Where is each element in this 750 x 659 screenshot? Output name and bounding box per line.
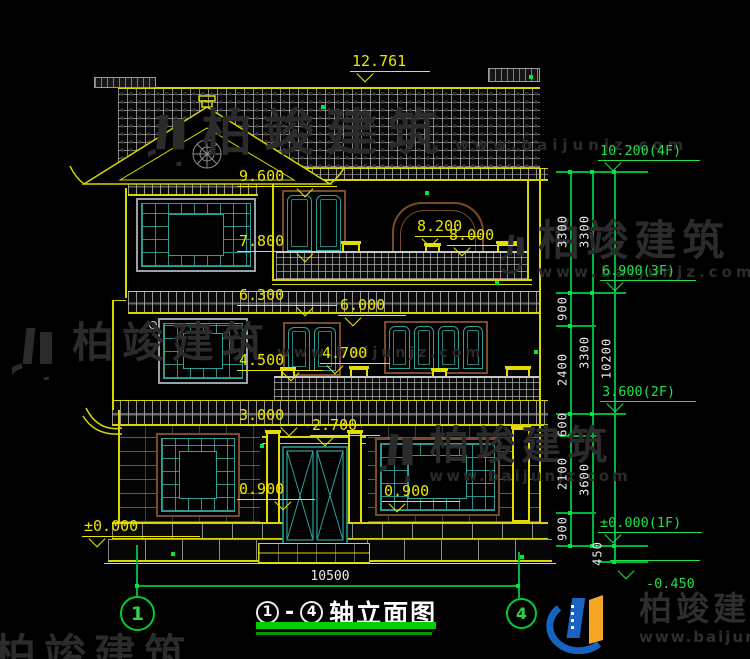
elevation-attic-window: 7.800: [237, 232, 337, 260]
terrace-floor-line: [272, 279, 532, 281]
cad-dot: [425, 191, 429, 195]
axis-line-4: [518, 552, 520, 598]
footer-logo-url: www.baijunjz.com: [639, 628, 750, 646]
cad-elevation-drawing: 柏竣建筑 www.baijunjz.com 柏竣建筑 www.baijunjz.…: [0, 0, 750, 659]
footer-logo: 柏竣建筑 www.baijunjz.com: [543, 592, 750, 654]
axis-line-1: [136, 545, 138, 596]
floor-marker-3f: 6.900(3F): [600, 263, 696, 289]
ridge-ornament-left: [94, 77, 156, 88]
axis-bubble-4: 4: [506, 598, 537, 629]
watermark-logo-icon: [12, 322, 62, 380]
floor-marker-base: -0.450: [610, 560, 700, 592]
elevation-eave2-right: 6.000: [338, 296, 406, 324]
elevation-win2-right: 4.700: [320, 344, 390, 372]
elevation-roof-peak: 12.761: [350, 52, 430, 80]
elevation-terrace-low: 8.000: [447, 226, 517, 254]
dim-col1-600: 600: [557, 401, 570, 449]
elevation-ground-left: ±0.000: [82, 517, 200, 545]
entrance-steps: [258, 543, 370, 563]
first-floor-window-left: [156, 433, 240, 517]
title-axis-start-bubble: 1: [256, 601, 279, 624]
title-axis-end-bubble: 4: [300, 601, 323, 624]
title-underline-thin: [256, 632, 432, 635]
overall-width-dim: 10500: [300, 569, 360, 584]
elevation-eave2-left: 6.300: [237, 286, 337, 314]
cad-dot: [495, 281, 499, 285]
bay-wall-edge-attic: [125, 188, 127, 298]
terrace-wall-edge: [272, 180, 274, 280]
attic-bay-window-lattice: [141, 203, 251, 267]
dim-col1-2400: 2400: [557, 346, 570, 394]
elevation-win2-left: 4.500: [237, 351, 323, 379]
cad-dot: [529, 75, 533, 79]
watermark-brand: 柏竣建筑: [202, 104, 450, 162]
gable-horn-left: [70, 166, 84, 184]
elevation-win1-left: 0.900: [237, 480, 315, 508]
dim-col1-2100: 2100: [557, 450, 570, 498]
dim-col2-3300a: 3300: [579, 208, 592, 256]
dim-col2-3300b: 3300: [579, 329, 592, 377]
dim-col1-3300a: 3300: [557, 208, 570, 256]
floor-marker-1f: ±0.000(1F): [598, 515, 702, 541]
watermark-partial: 柏竣建筑: [0, 634, 194, 659]
footer-logo-icon: [543, 592, 631, 654]
dim-col1-900a: 900: [557, 285, 570, 333]
elevation-attic-canopy: 9.600: [237, 167, 337, 195]
elevation-win1-right: 0.900: [382, 482, 460, 510]
dim-col3-10200: 10200: [601, 335, 614, 383]
cad-dot: [520, 555, 524, 559]
watermark-logo-icon: [148, 108, 192, 166]
ground-line: [104, 563, 556, 564]
dim-col2-3600: 3600: [579, 456, 592, 504]
elevation-door-top: 2.700: [310, 416, 380, 444]
cad-dot: [171, 552, 175, 556]
floor-marker-4f: 10.200(4F): [598, 143, 700, 169]
title-underline-thick: [256, 622, 436, 629]
title-dash: -: [285, 600, 294, 625]
floor-marker-2f: 3.600(2F): [600, 384, 696, 410]
dim-col1-900b: 900: [557, 505, 570, 553]
watermark-logo-icon: [380, 426, 419, 482]
elevation-eave3-left: 3.000: [237, 406, 321, 434]
cad-dot: [260, 444, 264, 448]
overall-dim-line: [137, 585, 519, 587]
cad-dot: [534, 350, 538, 354]
footer-logo-brand: 柏竣建筑: [639, 592, 750, 625]
eave-horn-left: [82, 404, 124, 438]
axis-bubble-1: 1: [120, 596, 155, 631]
